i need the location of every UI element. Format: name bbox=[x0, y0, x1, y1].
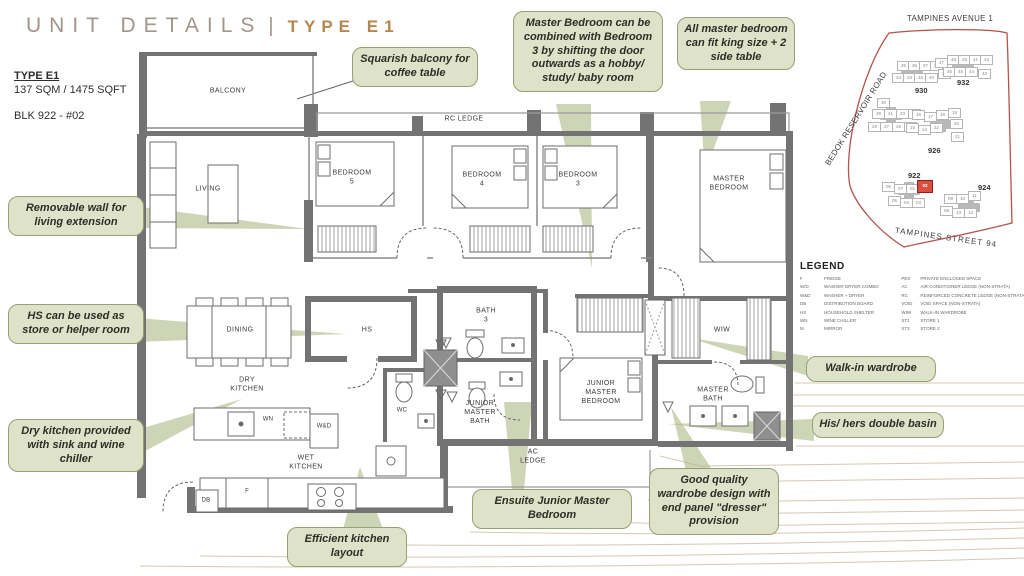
callout-efficient-kitchen: Efficient kitchen layout bbox=[287, 527, 407, 567]
map-block-label: 926 bbox=[928, 146, 941, 155]
legend-abbr: PES bbox=[901, 276, 920, 281]
legend-label: PRIVATE ENCLOSED SPACE bbox=[920, 276, 981, 281]
legend-row: W/DWASHER DRYER COMBO bbox=[800, 284, 901, 289]
legend-abbr: W&D bbox=[800, 293, 824, 298]
map-unit: 44 bbox=[965, 67, 978, 77]
legend-heading: LEGEND bbox=[800, 261, 1024, 272]
map-unit: 40 bbox=[925, 73, 938, 83]
map-unit: 22 bbox=[930, 123, 943, 133]
map-unit: 43 bbox=[978, 69, 991, 79]
legend-row: VOIDVOID SPACE (NON-STRATA) bbox=[901, 301, 1024, 306]
legend-label: WALK-IN WARDROBE bbox=[920, 310, 966, 315]
legend-column-left: FFRIDGEW/DWASHER DRYER COMBOW&DWASHER + … bbox=[800, 276, 901, 335]
legend-label: WASHER DRYER COMBO bbox=[824, 284, 879, 289]
legend-abbr: W/D bbox=[800, 284, 824, 289]
callout-wardrobe-dresser: Good quality wardrobe design with end pa… bbox=[649, 468, 779, 535]
legend-abbr: ST2 bbox=[901, 326, 920, 331]
title-type: TYPE E1 bbox=[288, 17, 400, 37]
callout-his-hers-basin: His/ hers double basin bbox=[812, 412, 944, 438]
legend: LEGEND FFRIDGEW/DWASHER DRYER COMBOW&DWA… bbox=[800, 261, 1024, 335]
title-separator: | bbox=[268, 15, 273, 38]
legend-row: ACAIR CONDITIONER LEDGE (NON-STRATA) bbox=[901, 284, 1024, 289]
legend-label: AIR CONDITIONER LEDGE (NON-STRATA) bbox=[920, 284, 1010, 289]
legend-row: ST2STORE 2 bbox=[901, 326, 1024, 331]
legend-label: VOID SPACE (NON-STRATA) bbox=[920, 301, 980, 306]
legend-abbr: ST1 bbox=[901, 318, 920, 323]
legend-label: WINE CHILLER bbox=[824, 318, 856, 323]
map-unit-highlighted: 02 bbox=[917, 180, 933, 193]
legend-abbr: DB bbox=[800, 301, 824, 306]
callout-master-combine: Master Bedroom can be combined with Bedr… bbox=[513, 11, 663, 92]
legend-row: ST1STORE 1 bbox=[901, 318, 1024, 323]
map-unit: 19 bbox=[948, 108, 961, 118]
legend-abbr: RC bbox=[901, 293, 920, 298]
legend-row: DBDISTRIBUTION BOARD bbox=[800, 301, 901, 306]
legend-row: PESPRIVATE ENCLOSED SPACE bbox=[901, 276, 1024, 281]
map-block-label: 930 bbox=[915, 86, 928, 95]
legend-row: FFRIDGE bbox=[800, 276, 901, 281]
unit-type-label: TYPE E1 bbox=[14, 70, 127, 84]
unit-info: TYPE E1 137 SQM / 1475 SQFT BLK 922 - #0… bbox=[14, 70, 127, 123]
callout-king-size: All master bedroom can fit king size + 2… bbox=[677, 17, 795, 70]
road-label-bottom: TAMPINES STREET 94 bbox=[876, 223, 1016, 251]
legend-abbr: M bbox=[800, 326, 824, 331]
map-unit: 30 bbox=[877, 98, 890, 108]
legend-column-right: PESPRIVATE ENCLOSED SPACEACAIR CONDITION… bbox=[901, 276, 1024, 335]
legend-label: STORE 2 bbox=[920, 326, 939, 331]
callout-ensuite-junior: Ensuite Junior Master Bedroom bbox=[472, 489, 632, 529]
legend-row: WIWWALK-IN WARDROBE bbox=[901, 310, 1024, 315]
legend-row: MMIRROR bbox=[800, 326, 901, 331]
legend-row: W&DWASHER + DRYER bbox=[800, 293, 901, 298]
legend-abbr: VOID bbox=[901, 301, 920, 306]
map-unit: 12 bbox=[964, 208, 977, 218]
map-unit: 11 bbox=[968, 191, 981, 201]
callout-walk-in-wardrobe: Walk-in wardrobe bbox=[806, 356, 936, 382]
legend-abbr: WN bbox=[800, 318, 824, 323]
map-unit: 42 bbox=[980, 55, 993, 65]
unit-block: BLK 922 - #02 bbox=[14, 110, 127, 124]
legend-label: MIRROR bbox=[824, 326, 842, 331]
map-unit: 03 bbox=[912, 198, 925, 208]
map-block-label: 922 bbox=[908, 171, 921, 180]
callout-squarish-balcony: Squarish balcony for coffee table bbox=[352, 47, 478, 87]
legend-abbr: AC bbox=[901, 284, 920, 289]
map-unit: 20 bbox=[950, 119, 963, 129]
map-block-label: 932 bbox=[957, 78, 970, 87]
legend-label: WASHER + DRYER bbox=[824, 293, 864, 298]
legend-abbr: HS bbox=[800, 310, 824, 315]
legend-abbr: F bbox=[800, 276, 824, 281]
legend-label: HOUSEHOLD SHELTER bbox=[824, 310, 874, 315]
legend-row: HSHOUSEHOLD SHELTER bbox=[800, 310, 901, 315]
legend-row: WNWINE CHILLER bbox=[800, 318, 901, 323]
unit-area: 137 SQM / 1475 SQFT bbox=[14, 84, 127, 98]
callout-dry-kitchen: Dry kitchen provided with sink and wine … bbox=[8, 419, 144, 472]
legend-abbr: WIW bbox=[901, 310, 920, 315]
legend-label: FRIDGE bbox=[824, 276, 841, 281]
title-main: UNIT DETAILS bbox=[26, 14, 262, 38]
legend-row: RCREINFORCED CONCRETE LEDGE (NON-STRATA) bbox=[901, 293, 1024, 298]
legend-label: DISTRIBUTION BOARD bbox=[824, 301, 873, 306]
legend-label: REINFORCED CONCRETE LEDGE (NON-STRATA) bbox=[920, 293, 1024, 298]
callout-removable-wall: Removable wall for living extension bbox=[8, 196, 144, 236]
legend-label: STORE 1 bbox=[920, 318, 939, 323]
unit-details-page: { "title": { "main": "UNIT DETAILS", "se… bbox=[0, 0, 1024, 576]
callout-hs-store: HS can be used as store or helper room bbox=[8, 304, 144, 344]
map-unit: 21 bbox=[951, 132, 964, 142]
page-title: UNIT DETAILS | TYPE E1 bbox=[26, 14, 400, 38]
road-label-top: TAMPINES AVENUE 1 bbox=[880, 14, 1020, 23]
